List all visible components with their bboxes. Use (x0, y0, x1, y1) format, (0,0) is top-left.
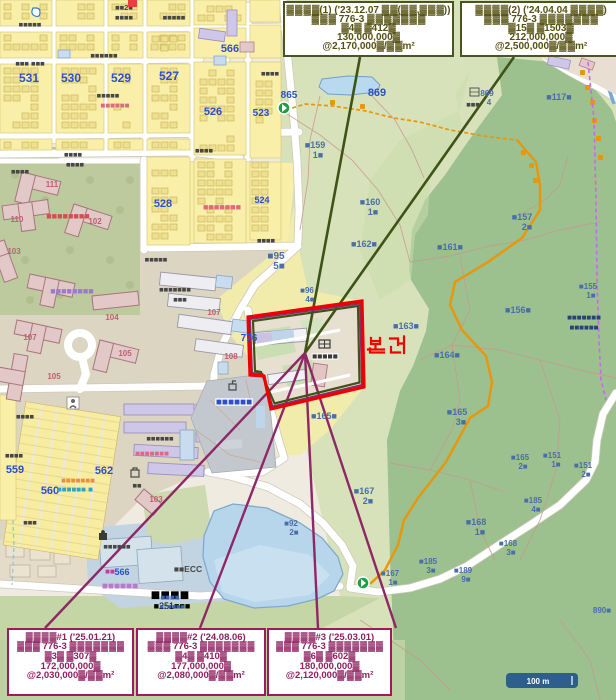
svg-text:■■■■■: ■■■■■ (145, 255, 168, 264)
svg-text:531: 531 (19, 71, 39, 85)
svg-text:■■■■■■: ■■■■■■ (102, 581, 138, 592)
svg-text:865: 865 (281, 90, 298, 101)
svg-text:■159: ■159 (305, 140, 325, 150)
svg-text:108: 108 (224, 352, 238, 361)
svg-text:523: 523 (253, 108, 270, 119)
svg-text:527: 527 (159, 69, 179, 83)
svg-text:■■■■■■■■: ■■■■■■■■ (46, 211, 90, 221)
svg-text:■■■■: ■■■■ (160, 593, 179, 602)
svg-text:104: 104 (105, 313, 119, 322)
svg-text:2■: 2■ (522, 222, 532, 232)
svg-text:■■■■: ■■■■ (64, 150, 83, 159)
svg-text:566: 566 (114, 567, 129, 577)
svg-text:■2■■■■: ■2■■■■ (159, 604, 184, 611)
svg-text:■■: ■■ (132, 481, 142, 490)
svg-text:■92: ■92 (284, 519, 298, 528)
svg-text:■■■■■: ■■■■■ (163, 13, 186, 22)
svg-text:■165: ■165 (511, 453, 530, 462)
svg-text:■■■■■■: ■■■■■■ (216, 397, 252, 408)
svg-text:■■■■: ■■■■ (261, 69, 280, 78)
svg-text:2■: 2■ (363, 496, 373, 506)
svg-text:■■ECC: ■■ECC (174, 564, 202, 574)
svg-text:■161■: ■161■ (437, 242, 463, 252)
svg-text:105: 105 (47, 372, 61, 381)
svg-text:5■: 5■ (273, 261, 285, 272)
svg-text:■■■■■■: ■■■■■■ (90, 51, 118, 60)
svg-text:■■■ ■■■: ■■■ ■■■ (15, 59, 45, 68)
svg-text:■160: ■160 (360, 197, 380, 207)
svg-text:■■■■■■: ■■■■■■ (570, 323, 599, 332)
svg-text:566: 566 (221, 43, 239, 55)
svg-text:110: 110 (11, 215, 24, 224)
svg-text:1■: 1■ (551, 460, 560, 469)
svg-text:■■■: ■■■ (23, 518, 37, 527)
svg-text:4■: 4■ (531, 505, 540, 514)
svg-text:■157: ■157 (512, 212, 532, 222)
svg-text:■■: ■■ (105, 567, 115, 576)
svg-text:1■: 1■ (388, 578, 397, 587)
svg-text:4: 4 (487, 98, 492, 107)
svg-text:776: 776 (241, 333, 258, 344)
svg-text:■164■: ■164■ (434, 350, 460, 360)
svg-text:107: 107 (207, 308, 221, 317)
svg-text:103: 103 (149, 495, 163, 504)
svg-text:■167: ■167 (354, 486, 374, 496)
svg-text:■■■■■■: ■■■■■■ (101, 101, 130, 110)
svg-text:2■: 2■ (518, 462, 527, 471)
svg-text:2■: 2■ (289, 528, 298, 537)
svg-text:■96: ■96 (300, 286, 314, 295)
svg-text:4■: 4■ (305, 295, 314, 304)
svg-text:■■■■: ■■■■ (195, 146, 214, 155)
svg-text:■167: ■167 (381, 569, 400, 578)
svg-text:2■: 2■ (581, 470, 590, 479)
svg-text:■■■■■■ ■: ■■■■■■ ■ (57, 485, 93, 494)
svg-text:■■■■■: ■■■■■ (19, 20, 42, 29)
svg-text:■■■■: ■■■■ (66, 160, 85, 169)
svg-text:■■■■: ■■■■ (16, 412, 35, 421)
svg-text:869: 869 (480, 89, 494, 98)
svg-text:■165: ■165 (447, 407, 467, 417)
svg-text:■156■: ■156■ (505, 305, 531, 315)
svg-text:528: 528 (154, 198, 172, 210)
svg-text:■155: ■155 (579, 282, 598, 291)
svg-text:■■■■■■■: ■■■■■■■ (567, 313, 601, 322)
svg-text:■151: ■151 (574, 461, 593, 470)
svg-text:■■■■■■■: ■■■■■■■ (203, 202, 241, 212)
svg-text:3■: 3■ (426, 566, 435, 575)
svg-text:■■■■■■■: ■■■■■■■ (61, 476, 95, 485)
svg-text:562: 562 (95, 465, 113, 477)
svg-text:■■■■: ■■■■ (257, 236, 276, 245)
svg-text:105: 105 (118, 349, 132, 358)
svg-text:3■: 3■ (506, 548, 515, 557)
svg-text:890■: 890■ (593, 606, 611, 615)
svg-text:530: 530 (61, 71, 81, 85)
svg-text:■185: ■185 (524, 496, 543, 505)
svg-text:559: 559 (6, 464, 24, 476)
svg-text:■165■: ■165■ (311, 411, 337, 421)
svg-text:■185: ■185 (419, 557, 438, 566)
svg-text:■163■: ■163■ (393, 321, 419, 331)
svg-text:■■■■: ■■■■ (5, 451, 24, 460)
svg-text:1■: 1■ (368, 207, 378, 217)
svg-text:3■: 3■ (456, 417, 466, 427)
svg-text:100 m: 100 m (527, 677, 550, 686)
svg-text:■■■■■■: ■■■■■■ (146, 434, 174, 443)
svg-text:■■■: ■■■ (466, 100, 480, 109)
svg-text:1■: 1■ (313, 150, 323, 160)
svg-text:■168: ■168 (499, 539, 518, 548)
svg-text:■■■■: ■■■■ (115, 13, 134, 22)
svg-text:■168: ■168 (466, 517, 486, 527)
svg-text:■■■■■■■: ■■■■■■■ (159, 285, 191, 294)
svg-text:■162■: ■162■ (351, 239, 377, 249)
svg-text:■■■■■■: ■■■■■■ (103, 542, 131, 551)
svg-text:■■■■■■■: ■■■■■■■ (135, 449, 169, 458)
svg-text:102: 102 (88, 217, 102, 226)
svg-text:■151: ■151 (543, 451, 562, 460)
svg-text:9■: 9■ (461, 575, 470, 584)
svg-text:■■■■■■■■: ■■■■■■■■ (50, 286, 94, 296)
svg-text:107: 107 (23, 333, 37, 342)
svg-text:■189: ■189 (454, 566, 473, 575)
svg-text:111: 111 (46, 180, 59, 189)
svg-text:524: 524 (254, 195, 269, 205)
svg-text:1■: 1■ (475, 527, 485, 537)
svg-text:1■: 1■ (586, 291, 595, 300)
svg-text:■117■: ■117■ (546, 92, 571, 102)
svg-text:■■■■■: ■■■■■ (312, 351, 338, 361)
svg-text:529: 529 (111, 71, 131, 85)
svg-text:■■■: ■■■ (173, 295, 187, 304)
svg-text:■■■■: ■■■■ (11, 167, 30, 176)
svg-text:869: 869 (368, 87, 386, 99)
svg-text:103: 103 (7, 247, 21, 256)
svg-text:526: 526 (204, 106, 222, 118)
svg-text:■■■■■: ■■■■■ (97, 91, 120, 100)
